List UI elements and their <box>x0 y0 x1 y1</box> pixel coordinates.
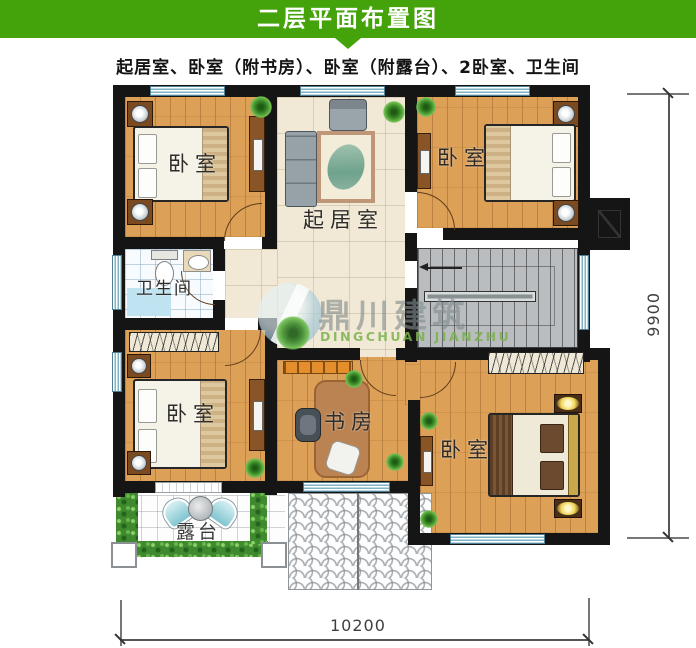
sink-icon <box>183 250 211 272</box>
wall <box>265 330 277 495</box>
pillow <box>540 424 564 453</box>
pillow <box>138 134 157 164</box>
wall <box>265 97 277 249</box>
stairs-arrow-icon <box>419 263 428 271</box>
bed <box>484 124 576 202</box>
wall <box>405 233 417 261</box>
tv-icon <box>253 139 263 171</box>
room-label-bathroom: 卫生间 <box>136 274 193 299</box>
dim-line-right <box>668 93 670 538</box>
tv-cabinet <box>420 436 433 486</box>
terrace-door <box>155 482 222 493</box>
wall <box>396 348 405 360</box>
terrace-hedge-right <box>250 491 267 544</box>
floor-plan-page: 二层平面布置图 起居室、卧室（附书房）、卧室（附露台）、2卧室、卫生间 <box>0 0 696 648</box>
dim-extension-line <box>627 93 689 95</box>
watermark-romanized: DINGCHUAN JIANZHU <box>320 329 511 344</box>
terrace-pillar-left <box>111 542 137 568</box>
pillow <box>138 168 157 198</box>
corner-lamp <box>554 394 582 413</box>
nightstand <box>127 354 151 378</box>
wall <box>262 237 277 249</box>
room-label-living: 起居室 <box>303 204 384 234</box>
lamp-glow <box>557 397 579 410</box>
window <box>579 255 589 330</box>
wall <box>113 237 224 249</box>
chair-seat <box>300 415 316 435</box>
nightstand <box>127 451 151 475</box>
dim-line-bottom <box>120 639 589 641</box>
wall <box>443 228 590 240</box>
pillow <box>552 167 571 197</box>
plant-icon <box>420 510 438 528</box>
plant-icon <box>245 458 265 478</box>
wall <box>598 348 610 545</box>
tv-cabinet <box>417 133 431 189</box>
window <box>112 255 122 310</box>
nightstand <box>553 200 579 226</box>
window <box>300 86 385 96</box>
pillow <box>552 133 571 163</box>
room-label-terrace: 露台 <box>176 517 220 544</box>
wall <box>213 249 225 271</box>
living-room-rug <box>317 131 375 203</box>
wardrobe <box>488 352 584 374</box>
lamp-glow <box>557 502 579 515</box>
window <box>112 352 122 392</box>
wall <box>405 97 417 192</box>
plant-icon <box>386 453 404 471</box>
tv-icon <box>253 401 263 431</box>
room-label-bedroom-bl: 卧室 <box>166 398 220 428</box>
stair-direction-line <box>428 267 462 269</box>
bookshelf <box>283 361 353 374</box>
wall <box>113 318 225 330</box>
plant-icon <box>345 370 363 388</box>
nightstand <box>127 199 153 225</box>
flue-inner <box>598 210 621 238</box>
lamp-icon <box>131 105 149 123</box>
window <box>450 534 545 544</box>
tv-cabinet <box>249 116 265 192</box>
tv-icon <box>423 451 432 472</box>
room-label-bedroom-tl: 卧室 <box>168 148 222 178</box>
headboard <box>568 415 578 495</box>
lamp-icon <box>131 203 149 221</box>
room-label-study: 书房 <box>324 406 378 436</box>
dim-height-label: 9900 <box>644 292 663 337</box>
master-doorway-floor <box>405 360 420 405</box>
office-chair <box>295 408 321 442</box>
room-label-bedroom-tr: 卧室 <box>437 142 491 172</box>
corner-lamp <box>554 499 582 518</box>
plant-icon <box>383 101 405 123</box>
toilet-icon <box>151 250 178 260</box>
window <box>150 86 225 96</box>
window <box>303 482 390 492</box>
pillow <box>540 461 564 490</box>
pillow <box>138 389 157 423</box>
bed <box>488 413 580 497</box>
wardrobe <box>129 332 219 352</box>
plant-icon <box>416 97 436 117</box>
dim-width-label: 10200 <box>330 616 386 635</box>
lamp-icon <box>131 358 147 374</box>
armchair <box>329 99 367 131</box>
page-title: 二层平面布置图 <box>0 0 696 38</box>
sink-basin <box>188 255 209 270</box>
roof-ridge-line <box>357 493 359 590</box>
tv-cabinet <box>249 379 265 451</box>
sofa <box>285 131 317 207</box>
lamp-icon <box>557 105 575 123</box>
rug-pattern <box>322 140 370 195</box>
room-label-bedroom-br: 卧室 <box>440 434 494 464</box>
dim-extension-line <box>627 537 689 539</box>
plan-subtitle: 起居室、卧室（附书房）、卧室（附露台）、2卧室、卫生间 <box>0 53 696 78</box>
plant-icon <box>250 96 272 118</box>
lamp-icon <box>557 204 575 222</box>
wall <box>408 400 420 540</box>
window <box>455 86 530 96</box>
lamp-icon <box>131 455 147 471</box>
header-pointer-triangle <box>335 38 361 49</box>
terrace-pillar-right <box>261 542 287 568</box>
nightstand <box>127 101 153 127</box>
tv-icon <box>420 150 429 174</box>
plant-icon <box>420 412 438 430</box>
watermark-plant-icon <box>276 316 310 350</box>
